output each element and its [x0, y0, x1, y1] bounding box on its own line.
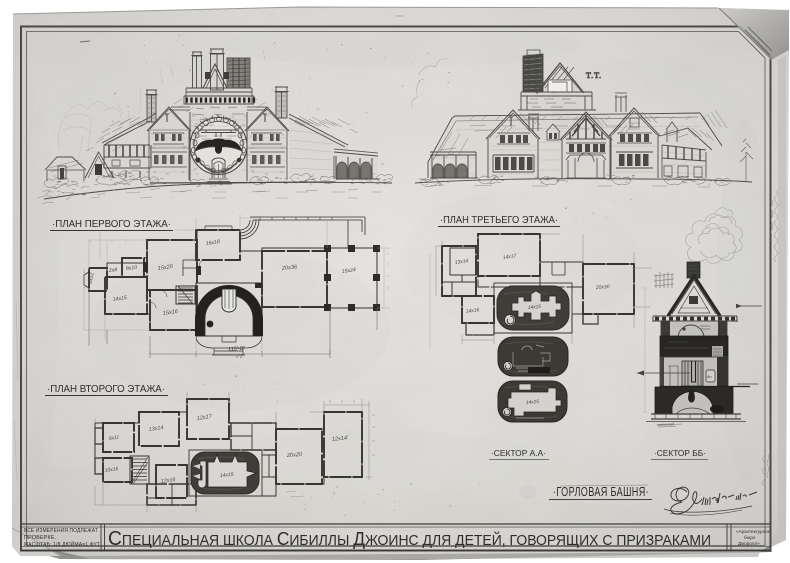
svg-text:·СЕКТОР А.А·: ·СЕКТОР А.А·	[491, 448, 546, 458]
svg-text:20х30: 20х30	[595, 284, 610, 291]
svg-text:·ГОРЛОВАЯ БАШНЯ·: ·ГОРЛОВАЯ БАШНЯ·	[553, 484, 649, 499]
svg-text:2х8: 2х8	[108, 267, 118, 274]
svg-text:14х15: 14х15	[220, 472, 234, 479]
svg-text:ПРОВЕРКЕ.: ПРОВЕРКЕ.	[24, 535, 56, 541]
svg-text:·ПЛАН ВТОРОГО ЭТАЖА·: ·ПЛАН ВТОРОГО ЭТАЖА·	[47, 383, 165, 395]
svg-text:8х10: 8х10	[126, 265, 138, 272]
svg-text:·ПЛАН ТРЕТЬЕГО ЭТАЖА·: ·ПЛАН ТРЕТЬЕГО ЭТАЖА·	[440, 214, 558, 226]
svg-text:14х15: 14х15	[526, 399, 540, 406]
svg-text:115'-0": 115'-0"	[228, 346, 246, 353]
svg-text:ВСЕ ИЗМЕРЕНИЯ ПОДЛЕЖАТ: ВСЕ ИЗМЕРЕНИЯ ПОДЛЕЖАТ	[24, 528, 98, 534]
svg-text:·СЕКТОР ББ·: ·СЕКТОР ББ·	[654, 448, 706, 458]
svg-text:МАСШТАБ: 1/8 ДЮЙМА=1 ФУТ: МАСШТАБ: 1/8 ДЮЙМА=1 ФУТ	[24, 540, 100, 548]
svg-text:до: до	[707, 374, 712, 379]
svg-text:20х20: 20х20	[286, 452, 304, 459]
svg-text:·ПЛАН ПЕРВОГО ЭТАЖА·: ·ПЛАН ПЕРВОГО ЭТАЖА·	[52, 218, 171, 230]
svg-text:«Архитектурное: «Архитектурное	[736, 529, 771, 534]
svg-text:Джоролл»: Джоролл»	[738, 541, 760, 546]
svg-text:бюро: бюро	[744, 535, 756, 540]
svg-text:Т.Т.: Т.Т.	[586, 71, 602, 80]
svg-text:14х15: 14х15	[528, 304, 542, 311]
